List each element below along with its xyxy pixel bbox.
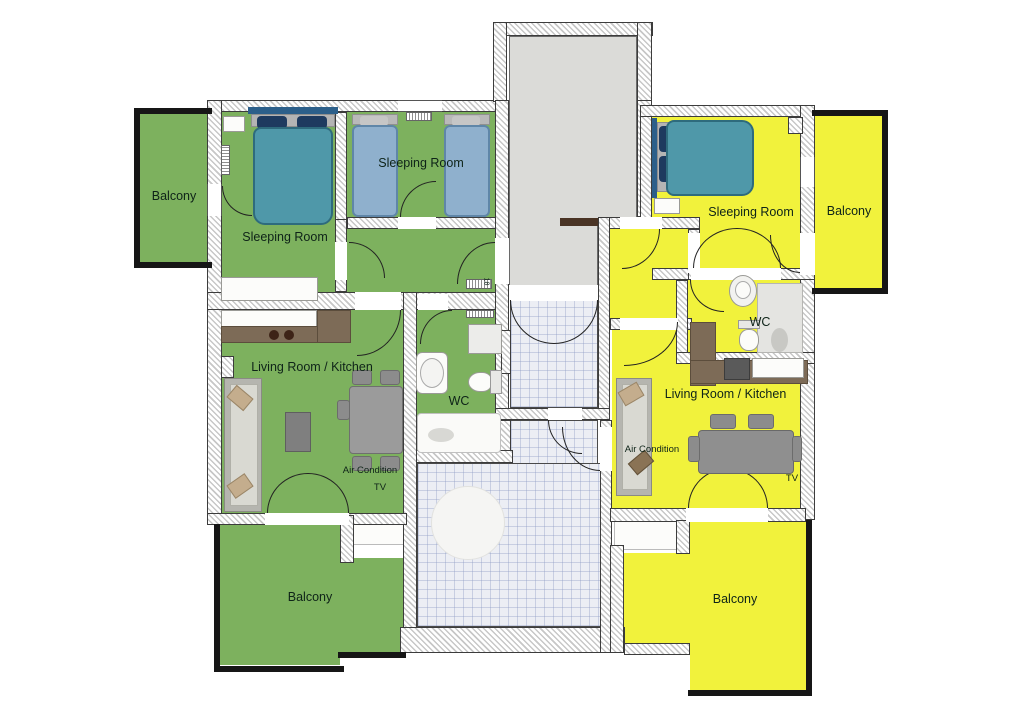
apartment-entry-opening [620, 217, 662, 229]
balcony-railing [214, 524, 220, 672]
stairwell-shaft-lower [509, 221, 598, 287]
radiator [406, 112, 432, 121]
radiator-size-label: 18 [482, 278, 489, 286]
coffee-table [285, 412, 311, 452]
radiator-niche [501, 330, 511, 374]
dining-chair [792, 436, 802, 462]
wall [676, 520, 690, 554]
entry-mat [560, 218, 598, 226]
double-bed [666, 120, 754, 196]
room-label-balcony-top-left: Balcony [140, 189, 208, 203]
balcony-bottom-right-b [624, 553, 690, 643]
balcony-railing [338, 652, 406, 658]
room-label-living-right: Living Room / Kitchen [633, 387, 818, 401]
dining-table [349, 386, 403, 454]
shower-drain [771, 328, 788, 352]
balcony-railing [806, 520, 812, 696]
radiator [221, 145, 230, 175]
door-opening [495, 238, 509, 284]
balcony-railing [882, 110, 888, 294]
bathroom-cabinet [468, 324, 502, 354]
wall [640, 105, 815, 117]
balcony-door-opening [207, 184, 222, 216]
room-label-wc-left: WC [415, 394, 503, 408]
floor-plan: 18 Balcony Sleepin [0, 0, 1024, 724]
wall [400, 627, 625, 653]
balcony-railing [134, 262, 212, 268]
balcony-railing [134, 108, 140, 268]
wall [207, 100, 222, 525]
balcony-door-opening [800, 233, 815, 275]
kitchen-counter-white [752, 358, 804, 378]
balcony-railing [214, 666, 344, 672]
window [800, 157, 815, 187]
wall-column [788, 117, 803, 134]
room-label-living-left: Living Room / Kitchen [222, 360, 402, 374]
toilet [739, 329, 759, 351]
wall [624, 643, 690, 655]
room-label-balcony-bottom-right: Balcony [690, 592, 780, 606]
room-label-balcony-bottom-left: Balcony [227, 590, 393, 604]
stove-burner [284, 330, 294, 340]
dining-chair [748, 414, 774, 429]
wall [493, 22, 653, 36]
room-label-wc-right: WC [705, 315, 815, 329]
double-bed [253, 127, 333, 225]
wall [598, 217, 610, 420]
wall [610, 545, 624, 653]
single-bed [352, 125, 398, 217]
sink-basin [735, 281, 751, 299]
window-strip [248, 107, 338, 114]
kitchen-counter [317, 310, 351, 343]
door-opening [418, 294, 448, 310]
nightstand [223, 116, 245, 132]
balcony-door-opening [265, 513, 349, 525]
wardrobe [221, 277, 318, 301]
balcony-railing [134, 108, 212, 114]
label-tv-left: TV [360, 482, 400, 493]
dining-table [698, 430, 794, 474]
wall [637, 22, 652, 102]
dining-chair [710, 414, 736, 429]
window [398, 100, 442, 112]
stairwell-shaft [509, 36, 637, 225]
wall [640, 105, 652, 229]
radiator [466, 310, 494, 318]
single-bed [444, 125, 490, 217]
room-label-sleeping-2: Sleeping Room [347, 156, 495, 170]
door-opening [335, 242, 347, 280]
wall [493, 22, 507, 102]
toilet [468, 372, 492, 392]
balcony-right-floor [815, 116, 882, 288]
wall [335, 112, 347, 222]
door-opening [398, 217, 436, 229]
balcony-bottom-left-b [338, 558, 404, 653]
balcony-railing [812, 110, 888, 116]
door-opening [355, 292, 401, 310]
label-air-condition-right: Air Condition [612, 444, 692, 455]
entry-double-door-opening [509, 285, 598, 301]
kitchen-counter-white [221, 310, 317, 327]
room-label-balcony-right: Balcony [815, 204, 883, 218]
door-opening [600, 427, 612, 471]
dining-chair [337, 400, 350, 420]
stove [724, 358, 750, 380]
hallway-rug-circle [431, 486, 505, 560]
bathtub-drain [428, 428, 454, 442]
door-opening [548, 408, 582, 420]
label-tv-right: TV [772, 473, 812, 484]
stove-burner [269, 330, 279, 340]
toilet-tank [490, 370, 502, 394]
room-label-sleeping-3: Sleeping Room [676, 205, 826, 219]
room-label-sleeping-1: Sleeping Room [225, 230, 345, 244]
balcony-double-door-opening [686, 508, 768, 522]
balcony-railing [812, 288, 888, 294]
balcony-railing [688, 690, 812, 696]
label-air-condition-left: Air Condition [330, 465, 410, 476]
sink-basin [420, 358, 444, 388]
